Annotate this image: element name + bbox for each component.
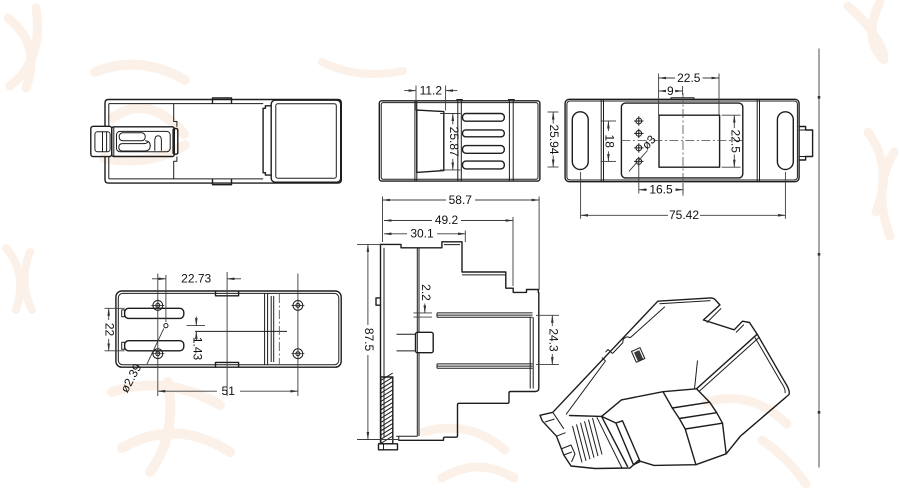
svg-text:22: 22 xyxy=(103,323,117,337)
svg-text:30.1: 30.1 xyxy=(410,227,434,241)
svg-text:22.5: 22.5 xyxy=(677,71,701,85)
svg-text:9: 9 xyxy=(667,84,674,98)
svg-text:25.87: 25.87 xyxy=(447,127,461,157)
svg-text:24.3: 24.3 xyxy=(546,328,560,352)
svg-text:58.7: 58.7 xyxy=(449,193,473,207)
svg-text:16.5: 16.5 xyxy=(649,183,673,197)
svg-text:18: 18 xyxy=(602,135,616,149)
svg-text:87.5: 87.5 xyxy=(362,328,376,352)
svg-text:1.43: 1.43 xyxy=(190,337,204,361)
svg-text:ø3: ø3 xyxy=(639,132,659,152)
svg-text:2.2: 2.2 xyxy=(419,284,433,301)
svg-text:49.2: 49.2 xyxy=(435,213,459,227)
svg-text:75.42: 75.42 xyxy=(669,208,699,222)
svg-text:22.73: 22.73 xyxy=(181,272,211,286)
svg-text:25.94: 25.94 xyxy=(547,124,561,154)
svg-text:51: 51 xyxy=(222,384,236,398)
svg-text:22.5: 22.5 xyxy=(728,130,742,154)
svg-text:11.2: 11.2 xyxy=(420,83,443,97)
